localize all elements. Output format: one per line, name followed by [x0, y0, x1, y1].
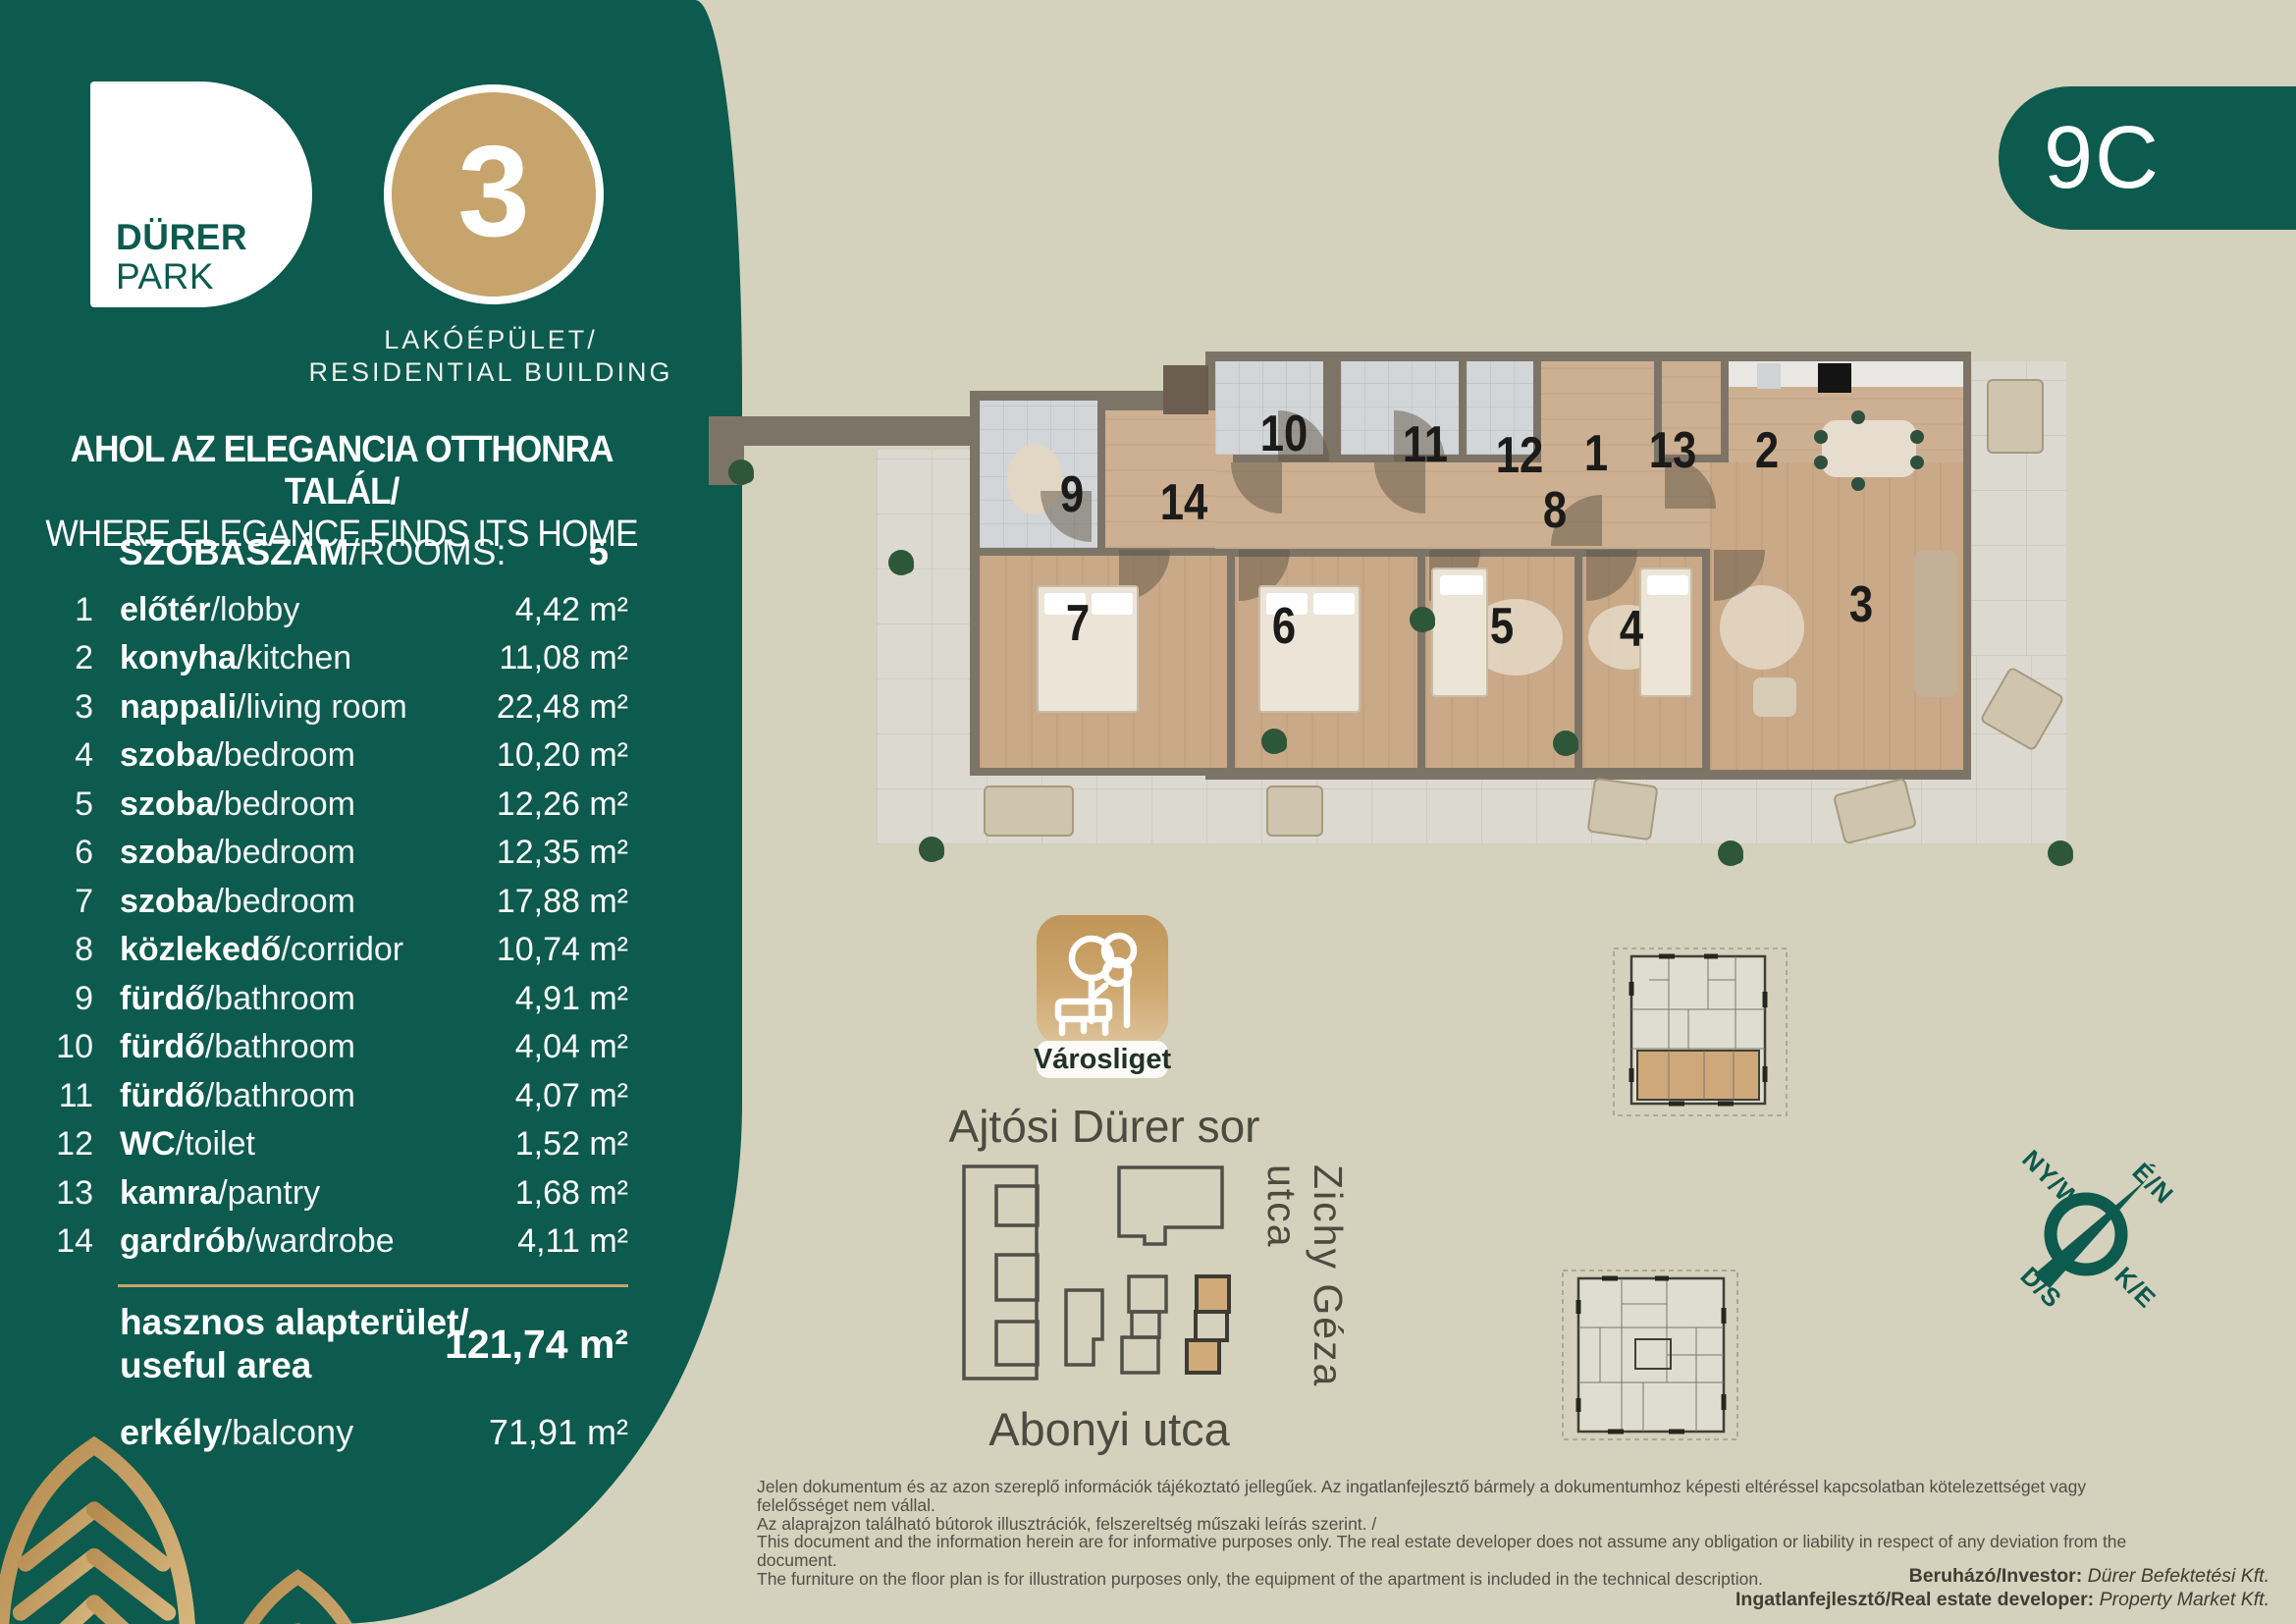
street-label-right: Zichy Géza utca	[1258, 1164, 1351, 1400]
useful-area-value: 121,74 m²	[334, 1322, 628, 1368]
unit-number: 9C	[2044, 108, 2161, 209]
plan-number-1: 1	[1584, 424, 1608, 483]
park-label: Városliget	[1037, 1041, 1168, 1078]
brochure-page: DÜRER PARK 3 LAKÓÉPÜLET/ RESIDENTIAL BUI…	[0, 0, 2296, 1624]
gold-tree-decoration-icon	[192, 1567, 403, 1624]
plan-number-13: 13	[1649, 421, 1697, 480]
room-row-6: 6szoba/bedroom12,35 m²	[0, 834, 687, 882]
balcony-value: 71,91 m²	[334, 1412, 628, 1453]
plan-number-10: 10	[1260, 405, 1308, 463]
plan-number-12: 12	[1496, 426, 1544, 485]
room-row-8: 8közlekedő/corridor10,74 m²	[0, 931, 687, 979]
building-number: 3	[457, 127, 529, 256]
logo-name-line2: PARK	[116, 256, 214, 298]
room-row-2: 2konyha/kitchen11,08 m²	[0, 639, 687, 687]
rooms-count-row: SZOBASZÁM/ROOMS: 5	[0, 532, 687, 573]
plan-number-9: 9	[1060, 465, 1084, 524]
plan-number-4: 4	[1620, 600, 1643, 659]
useful-area-label-en: useful area	[120, 1345, 311, 1386]
street-label-top: Ajtósi Dürer sor	[942, 1100, 1266, 1153]
room-row-9: 9fürdő/bathroom4,91 m²	[0, 980, 687, 1028]
plan-number-3: 3	[1849, 575, 1873, 634]
plan-number-6: 6	[1272, 597, 1296, 656]
building-number-badge: 3	[384, 84, 604, 304]
totals-divider	[118, 1284, 628, 1287]
room-row-3: 3nappali/living room22,48 m²	[0, 688, 687, 736]
trees-bench-icon	[1037, 915, 1168, 1045]
sidebar-panel: DÜRER PARK 3 LAKÓÉPÜLET/ RESIDENTIAL BUI…	[0, 0, 742, 1624]
compass: NY/W É/N D/S K/E	[2002, 1149, 2179, 1316]
room-row-10: 10fürdő/bathroom4,04 m²	[0, 1028, 687, 1076]
street-label-bottom: Abonyi utca	[952, 1402, 1266, 1456]
building-type-label: LAKÓÉPÜLET/ RESIDENTIAL BUILDING	[255, 324, 726, 389]
gold-tree-decoration-icon	[0, 1434, 222, 1624]
rooms-count-value: 5	[334, 532, 609, 573]
room-row-5: 5szoba/bedroom12,26 m²	[0, 785, 687, 834]
park-icon	[1037, 915, 1168, 1045]
room-row-4: 4szoba/bedroom10,20 m²	[0, 736, 687, 785]
varosliget-marker: Városliget	[1037, 915, 1168, 1078]
plan-number-14: 14	[1160, 473, 1208, 532]
logo-name-line1: DÜRER	[116, 217, 247, 258]
unit-number-badge: 9C	[1999, 86, 2296, 230]
gold-tree-decoration-icon	[408, 1600, 536, 1624]
site-map	[950, 1159, 1264, 1394]
key-plan-upper	[1610, 941, 1796, 1137]
plan-number-5: 5	[1490, 597, 1514, 656]
key-plan-lower	[1559, 1265, 1745, 1446]
room-row-14: 14gardrób/wardrobe4,11 m²	[0, 1222, 687, 1271]
room-row-11: 11fürdő/bathroom4,07 m²	[0, 1077, 687, 1125]
room-row-12: 12WC/toilet1,52 m²	[0, 1125, 687, 1173]
plan-number-2: 2	[1755, 421, 1779, 480]
investor-credit: Beruházó/Investor: Dürer Befektetési Kft…	[1472, 1565, 2269, 1588]
room-row-7: 7szoba/bedroom17,88 m²	[0, 883, 687, 931]
developer-credit: Ingatlanfejlesztő/Real estate developer:…	[1472, 1589, 2269, 1611]
durer-park-logo: DÜRER PARK	[90, 81, 312, 307]
room-row-1: 1előtér/lobby4,42 m²	[0, 591, 687, 639]
plan-number-11: 11	[1403, 415, 1448, 474]
plan-number-7: 7	[1066, 594, 1090, 653]
room-row-13: 13kamra/pantry1,68 m²	[0, 1174, 687, 1222]
plan-number-8: 8	[1543, 481, 1567, 540]
